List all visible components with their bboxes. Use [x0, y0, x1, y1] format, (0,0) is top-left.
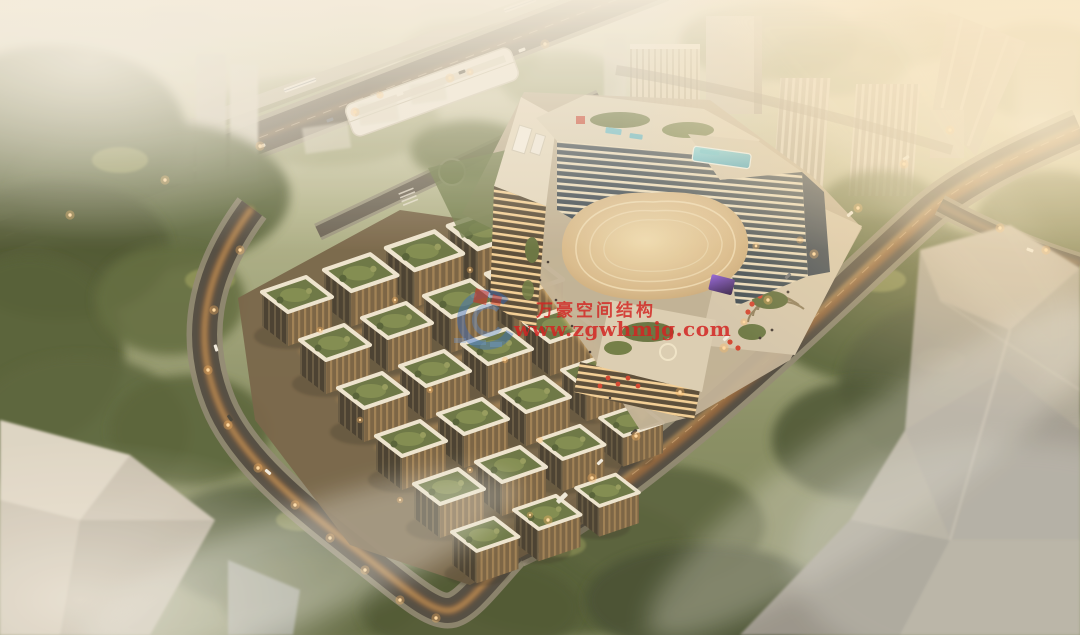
atmosphere-haze	[0, 0, 1080, 635]
architectural-rendering: 万豪空间结构 www.zgwhmjg.com	[0, 0, 1080, 635]
rendered-scene	[0, 0, 1080, 635]
